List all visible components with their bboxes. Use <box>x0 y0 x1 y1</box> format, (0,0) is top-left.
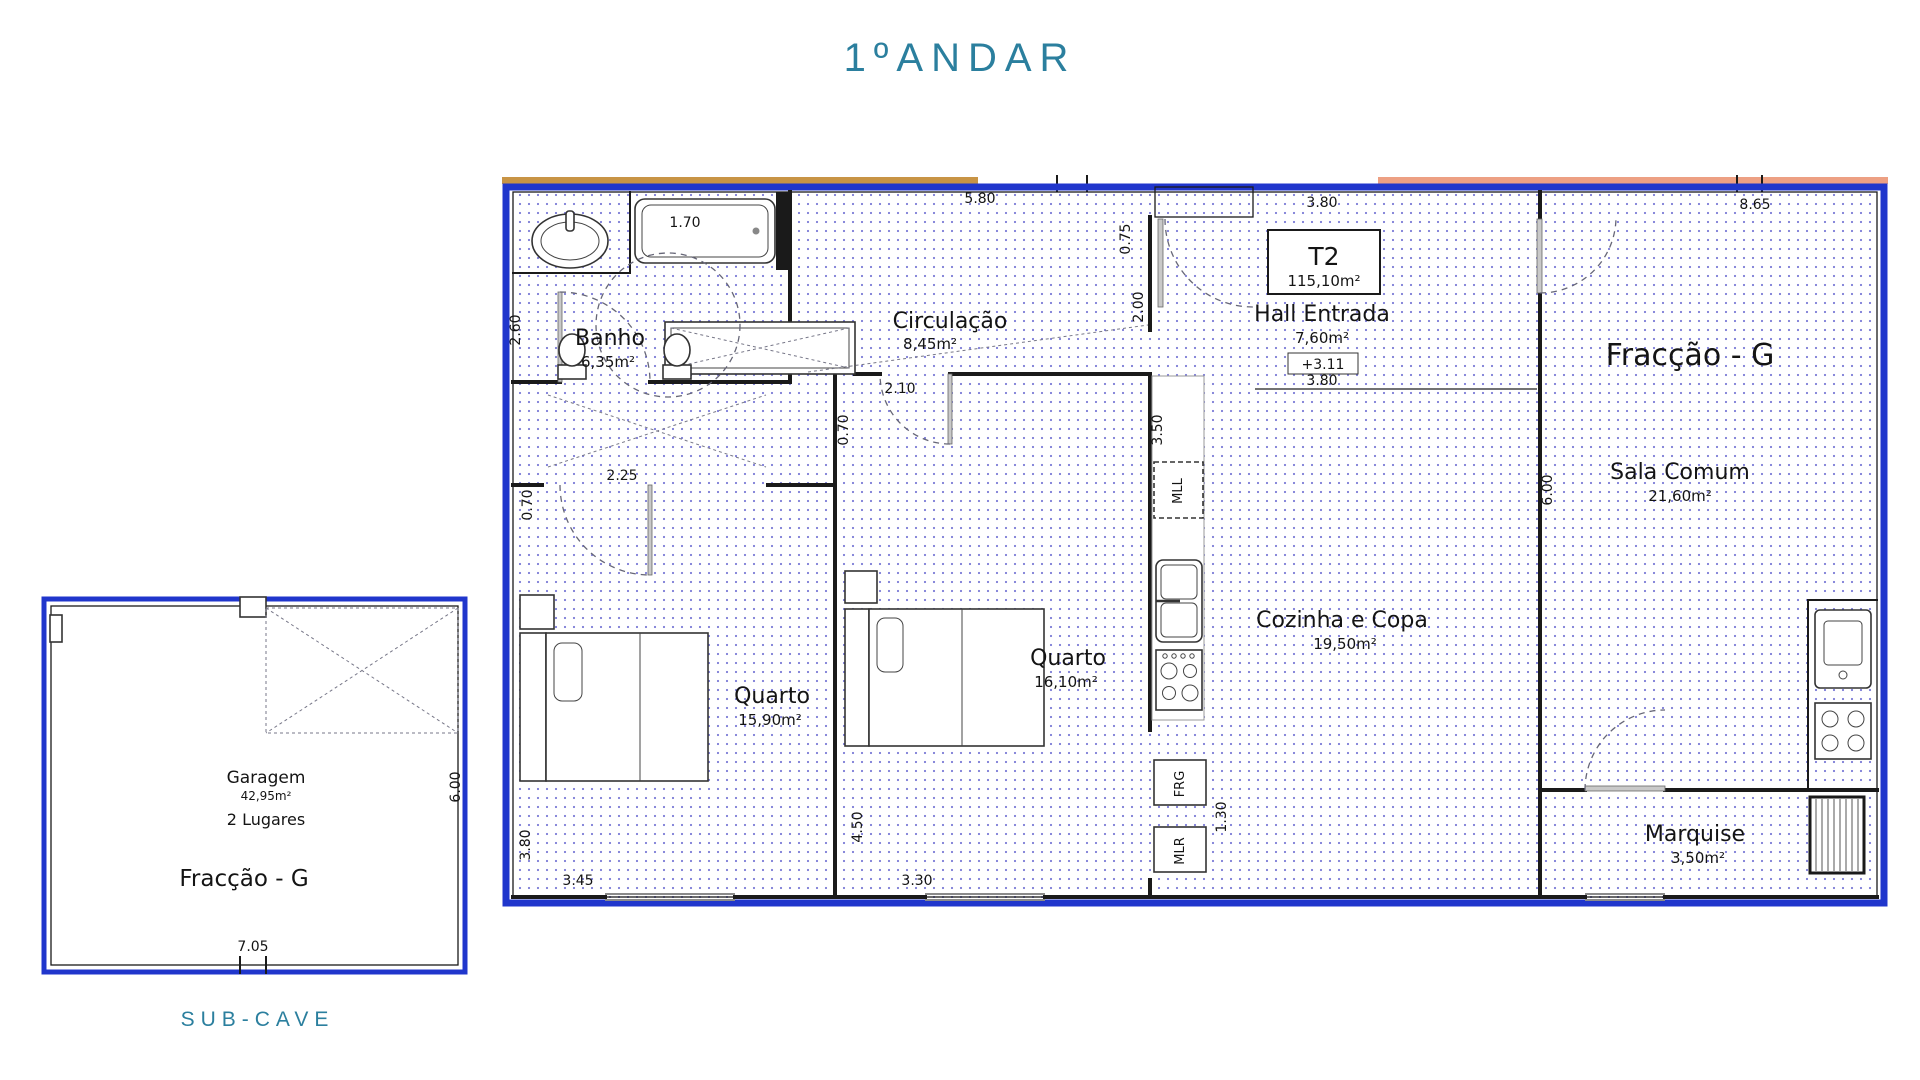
garage-dim-height: 6.00 <box>448 771 464 802</box>
bidet <box>663 334 691 379</box>
level-mark: +3.11 <box>1302 357 1345 373</box>
dim-top-right: 8.65 <box>1739 197 1770 213</box>
label-washer: MLR <box>1173 837 1188 865</box>
room-hall: Hall Entrada <box>1254 302 1390 327</box>
room-quarto1-area: 15,90m² <box>738 711 802 729</box>
garage-name: Garagem <box>227 768 306 788</box>
sub-cave-plan: Garagem 42,95m² 2 Lugares Fracção - G 7.… <box>40 595 475 985</box>
entry-door-leaf <box>1158 219 1163 307</box>
room-circulacao: Circulação <box>893 309 1008 334</box>
dim-wardrobe-depth: 0.70 <box>836 414 852 445</box>
fraction-label: Fracção - G <box>1606 338 1775 373</box>
label-fridge: FRG <box>1173 771 1188 798</box>
kitchen-sink <box>1156 560 1202 642</box>
label-dishwasher: MLL <box>1171 477 1186 503</box>
room-quarto2: Quarto <box>1030 646 1106 671</box>
room-sala: Sala Comum <box>1610 460 1750 485</box>
dim-bottom-q2: 3.30 <box>901 873 932 889</box>
unit-type: T2 <box>1307 242 1339 271</box>
dim-left-bottom: 3.80 <box>518 829 534 860</box>
dim-bottom-q1: 3.45 <box>562 873 593 889</box>
room-circulacao-area: 8,45m² <box>903 335 957 353</box>
dim-sala-wall: 6.00 <box>1540 474 1556 505</box>
dim-banho-height: 2.60 <box>508 314 524 345</box>
room-banho-area: 6,35m² <box>581 353 635 371</box>
room-sala-area: 21,60m² <box>1648 487 1712 505</box>
dim-top-left: 5.80 <box>964 191 995 207</box>
dim-entry-b: 2.00 <box>1131 291 1147 322</box>
garage-fraction: Fracção - G <box>179 866 308 892</box>
pillar <box>240 597 266 617</box>
page-title: 1ºANDAR <box>0 36 1920 81</box>
dim-nook: 1.30 <box>1214 801 1230 832</box>
first-floor-plan: T2 115,10m² +3.11 Banho 6,35m² Circulaçã… <box>500 175 1890 920</box>
room-hall-area: 7,60m² <box>1295 329 1349 347</box>
dim-hall-width: 3.80 <box>1306 373 1337 389</box>
dim-tub: 1.70 <box>669 215 700 231</box>
stove <box>1156 650 1202 710</box>
room-cozinha: Cozinha e Copa <box>1256 608 1428 633</box>
dim-entry-a: 0.75 <box>1118 223 1134 254</box>
bathtub <box>635 199 775 263</box>
dim-vest-width: 2.25 <box>606 468 637 484</box>
marquise-stove <box>1815 703 1871 759</box>
wardrobe <box>665 322 855 374</box>
dim-wardrobe: 2.10 <box>884 381 915 397</box>
room-cozinha-area: 19,50m² <box>1313 635 1377 653</box>
room-marquise: Marquise <box>1645 822 1745 847</box>
room-quarto1: Quarto <box>734 684 810 709</box>
top-band-salmon <box>1378 177 1888 184</box>
garage-area: 42,95m² <box>241 789 292 803</box>
sub-cave-caption: SUB-CAVE <box>40 1008 475 1032</box>
garage-spaces: 2 Lugares <box>227 810 305 829</box>
garage-dim-width: 7.05 <box>237 939 268 955</box>
floor-grate <box>1810 797 1864 873</box>
dim-kitchen-top: 3.50 <box>1150 414 1166 445</box>
wall-notch <box>50 615 62 642</box>
dim-top-hall: 3.80 <box>1306 195 1337 211</box>
unit-area: 115,10m² <box>1287 272 1360 290</box>
room-banho: Banho <box>575 326 645 351</box>
room-marquise-area: 3,50m² <box>1671 849 1725 867</box>
dim-vest-left: 0.70 <box>520 489 536 520</box>
dim-quarto2-side: 4.50 <box>850 811 866 842</box>
marquise-sink <box>1815 610 1871 688</box>
top-band-orange <box>502 177 978 184</box>
room-quarto2-area: 16,10m² <box>1034 673 1098 691</box>
